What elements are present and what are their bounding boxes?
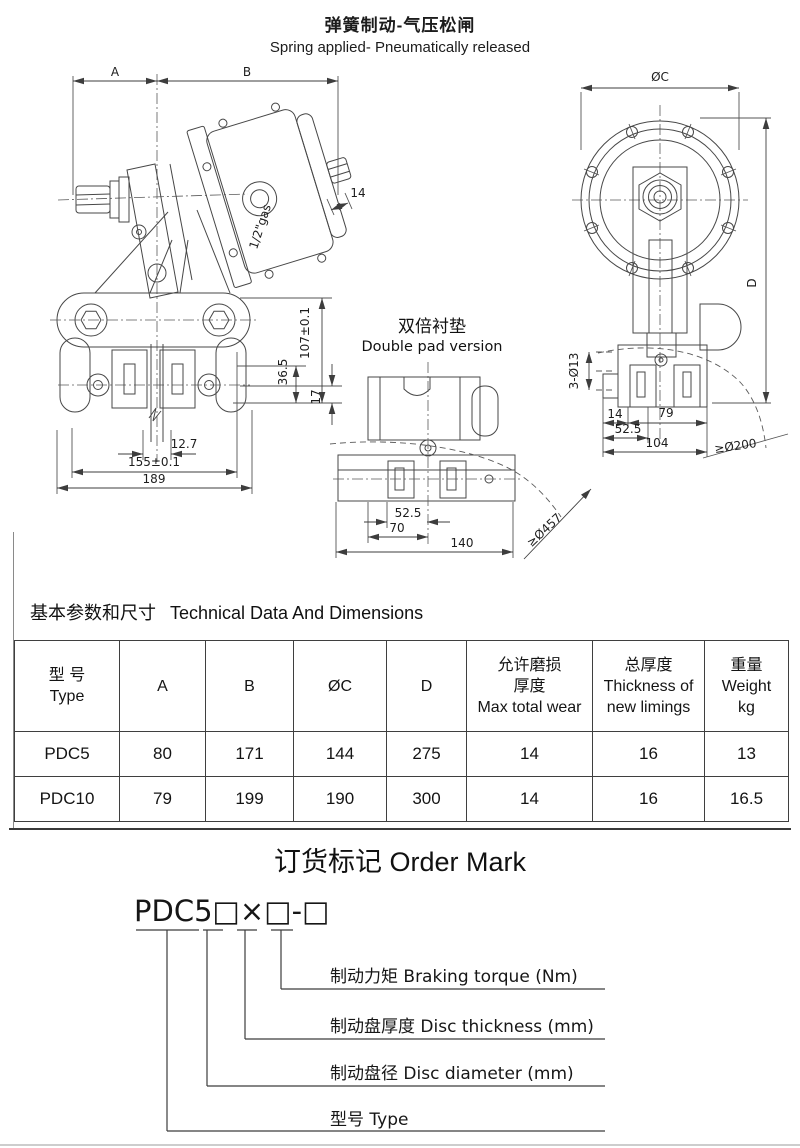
col-header-oc-label: ØC xyxy=(294,676,386,697)
cell-b: 171 xyxy=(206,732,294,777)
side-view-drawing: A B 14 1/2"gas 107±0.1 36.5 17 12.7 155±… xyxy=(50,65,373,494)
col-header-oc: ØC xyxy=(294,641,387,732)
dim-label-17: 17 xyxy=(309,389,323,404)
col-header-thickness-en1: Thickness of xyxy=(593,676,704,697)
cell-b: 199 xyxy=(206,777,294,822)
col-header-type-en: Type xyxy=(15,686,119,707)
dim-label-107: 107±0.1 xyxy=(298,307,312,359)
col-header-weight-en: Weight xyxy=(705,676,788,697)
dim-label-front-14: 14 xyxy=(607,407,622,421)
cell-max-wear: 14 xyxy=(467,732,593,777)
dim-label-disc-200: ≥Ø200 xyxy=(713,436,757,456)
dim-label-pad-70: 70 xyxy=(389,521,404,535)
col-header-type: 型 号 Type xyxy=(15,641,120,732)
table-section-title-en: Technical Data And Dimensions xyxy=(170,603,423,623)
dim-label-14: 14 xyxy=(350,186,365,200)
dim-label-front-52-5: 52.5 xyxy=(615,422,642,436)
cell-max-wear: 14 xyxy=(467,777,593,822)
cell-d: 275 xyxy=(387,732,467,777)
dim-label-D: D xyxy=(745,278,759,287)
col-header-max-wear-zh1: 允许磨损 xyxy=(467,655,592,676)
front-view-drawing: ØC D 3-Ø13 14 79 52.5 104 ≥Ø200 xyxy=(567,70,788,458)
dim-label-189: 189 xyxy=(143,472,166,486)
col-header-thickness-en2: new limings xyxy=(593,697,704,718)
col-header-b: B xyxy=(206,641,294,732)
double-pad-title-zh: 双倍衬垫 xyxy=(398,317,466,337)
section-divider xyxy=(9,828,791,830)
dim-label-A: A xyxy=(111,65,120,79)
double-pad-drawing: 双倍衬垫 Double pad version xyxy=(330,317,591,559)
dim-label-B: B xyxy=(243,65,251,79)
cell-a: 79 xyxy=(120,777,206,822)
col-header-weight-zh: 重量 xyxy=(705,655,788,676)
table-header-row: 型 号 Type A B ØC D 允许磨损 厚度 Max total wear… xyxy=(15,641,789,732)
page-header: 弹簧制动-气压松闸 Spring applied- Pneumatically … xyxy=(0,11,800,56)
dim-label-disc-457: ≥Ø457 xyxy=(524,510,565,549)
cell-thickness: 16 xyxy=(593,732,705,777)
page-left-rule xyxy=(13,532,14,828)
dim-label-36-5: 36.5 xyxy=(276,359,290,386)
callout-braking-torque: 制动力矩 Braking torque (Nm) xyxy=(330,967,578,987)
dim-label-12-7: 12.7 xyxy=(171,437,198,451)
callout-disc-thickness: 制动盘厚度 Disc thickness (mm) xyxy=(330,1017,594,1037)
callout-disc-diameter: 制动盘径 Disc diameter (mm) xyxy=(330,1064,574,1084)
cell-a: 80 xyxy=(120,732,206,777)
col-header-a-label: A xyxy=(120,676,205,697)
cell-weight: 13 xyxy=(705,732,789,777)
col-header-a: A xyxy=(120,641,206,732)
double-pad-title-en: Double pad version xyxy=(362,339,503,355)
dim-label-155: 155±0.1 xyxy=(128,455,180,469)
dim-label-pad-140: 140 xyxy=(451,536,474,550)
dim-label-pad-52-5: 52.5 xyxy=(395,506,422,520)
dim-label-OC: ØC xyxy=(651,70,669,84)
col-header-weight: 重量 Weight kg xyxy=(705,641,789,732)
col-header-d-label: D xyxy=(387,676,466,697)
col-header-max-wear-zh2: 厚度 xyxy=(467,676,592,697)
col-header-max-wear: 允许磨损 厚度 Max total wear xyxy=(467,641,593,732)
col-header-thickness-zh: 总厚度 xyxy=(593,655,704,676)
page-bottom-edge xyxy=(0,1144,800,1146)
technical-data-table: 型 号 Type A B ØC D 允许磨损 厚度 Max total wear… xyxy=(14,640,789,822)
order-mark-diagram: PDC5□×□-□ 制动力矩 Braking torque (Nm) 制动盘厚度… xyxy=(0,880,800,1148)
table-row-pdc10: PDC10 79 199 190 300 14 16 16.5 xyxy=(15,777,789,822)
col-header-d: D xyxy=(387,641,467,732)
cell-model: PDC5 xyxy=(15,732,120,777)
datasheet-page: 弹簧制动-气压松闸 Spring applied- Pneumatically … xyxy=(0,0,800,1148)
cell-weight: 16.5 xyxy=(705,777,789,822)
callout-type: 型号 Type xyxy=(330,1110,408,1130)
col-header-type-zh: 型 号 xyxy=(15,665,119,686)
dim-label-3-holes: 3-Ø13 xyxy=(567,353,581,390)
cell-d: 300 xyxy=(387,777,467,822)
dim-label-front-104: 104 xyxy=(646,436,669,450)
order-code: PDC5□×□-□ xyxy=(134,894,329,928)
table-section-title-zh: 基本参数和尺寸 xyxy=(30,603,156,623)
dim-label-gas-thread: 1/2"gas xyxy=(246,203,274,251)
col-header-max-wear-en: Max total wear xyxy=(467,697,592,718)
table-section-title: 基本参数和尺寸Technical Data And Dimensions xyxy=(30,599,423,625)
order-mark-title: 订货标记 Order Mark xyxy=(0,840,800,879)
dim-label-front-79: 79 xyxy=(658,406,673,420)
col-header-b-label: B xyxy=(206,676,293,697)
cell-oc: 144 xyxy=(294,732,387,777)
cell-thickness: 16 xyxy=(593,777,705,822)
cell-model: PDC10 xyxy=(15,777,120,822)
col-header-thickness: 总厚度 Thickness of new limings xyxy=(593,641,705,732)
technical-drawings: A B 14 1/2"gas 107±0.1 36.5 17 12.7 155±… xyxy=(0,60,800,585)
cell-oc: 190 xyxy=(294,777,387,822)
page-title-zh: 弹簧制动-气压松闸 xyxy=(0,11,800,36)
page-title-en: Spring applied- Pneumatically released xyxy=(0,39,800,56)
col-header-weight-unit: kg xyxy=(705,697,788,718)
table-row-pdc5: PDC5 80 171 144 275 14 16 13 xyxy=(15,732,789,777)
